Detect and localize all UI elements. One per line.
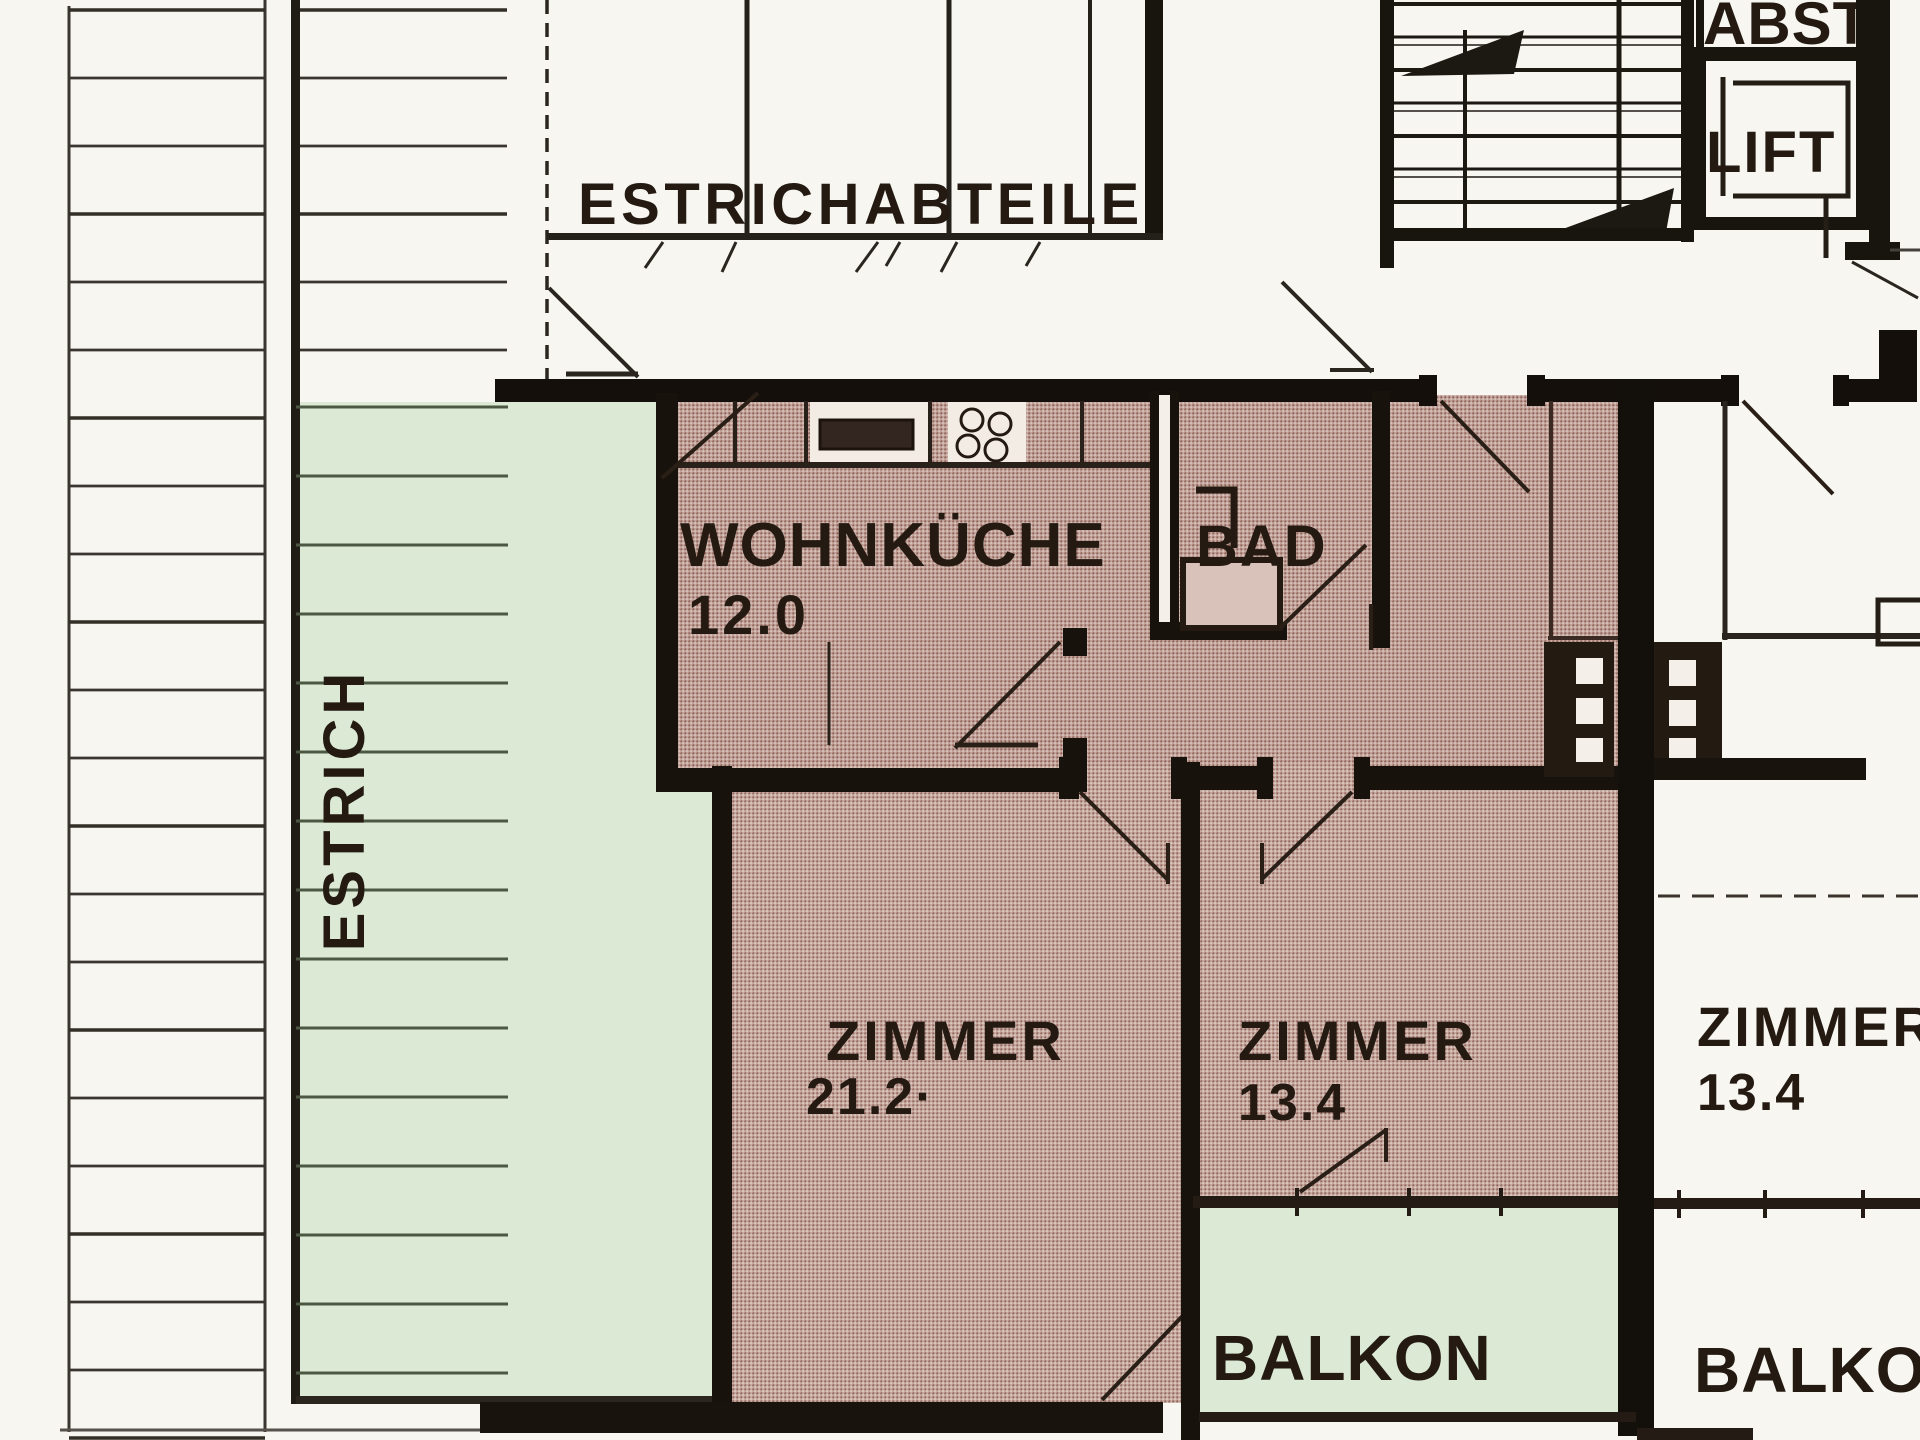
svg-text:12.0: 12.0 bbox=[688, 583, 809, 646]
svg-text:13.4: 13.4 bbox=[1697, 1064, 1806, 1122]
svg-text:ZIMMER: ZIMMER bbox=[1238, 1009, 1477, 1072]
svg-text:BAD: BAD bbox=[1196, 514, 1328, 579]
svg-text:ESTRICH: ESTRICH bbox=[312, 669, 377, 952]
svg-text:ESTRICHABTEILE: ESTRICHABTEILE bbox=[578, 172, 1144, 237]
svg-text:BALKON: BALKON bbox=[1212, 1322, 1492, 1394]
svg-text:13.4: 13.4 bbox=[1238, 1074, 1347, 1132]
svg-text:ZIMMER: ZIMMER bbox=[1697, 995, 1920, 1058]
svg-text:ZIMMER: ZIMMER bbox=[826, 1009, 1065, 1072]
svg-text:WOHNKÜCHE: WOHNKÜCHE bbox=[680, 511, 1106, 580]
svg-text:21.2·: 21.2· bbox=[806, 1068, 935, 1126]
svg-text:ABST: ABST bbox=[1703, 0, 1870, 57]
svg-text:LIFT: LIFT bbox=[1706, 120, 1836, 185]
svg-text:BALKO: BALKO bbox=[1694, 1334, 1920, 1406]
